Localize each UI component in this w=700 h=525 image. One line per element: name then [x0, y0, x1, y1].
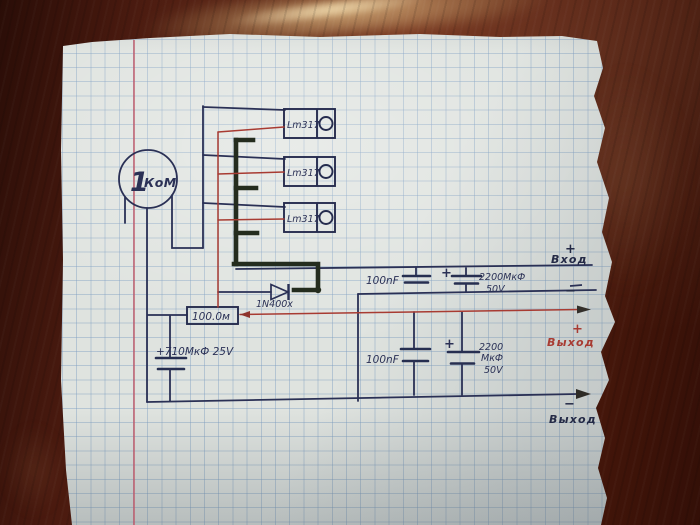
input-minus-rail — [358, 290, 596, 294]
output-large-cap-plus: + — [444, 337, 455, 352]
input-minus-extra-dash — [570, 285, 582, 286]
output-plus-arrowhead — [577, 306, 591, 314]
output-small-cap-label: 100nF — [366, 354, 400, 366]
output-plus-rail — [240, 310, 580, 315]
photo-scene: 1 КоМ — [0, 0, 700, 525]
input-label: Вход — [551, 253, 588, 266]
output-minus-sign: − — [564, 397, 575, 412]
branch-to-regulator-3 — [203, 203, 285, 207]
series-resistor: 100.0м — [187, 307, 238, 324]
red-branch-regulator-1 — [218, 127, 284, 132]
output-large-cap-unit: МкФ — [481, 353, 503, 364]
output-filter: 100nF + 2200 МкФ 50V — [366, 312, 504, 395]
terminal-labels: + Вход − + Выход − Выход — [547, 242, 597, 426]
regulator-2: Lm317 — [284, 157, 335, 186]
regulator-1-label: Lm317 — [287, 120, 320, 131]
red-ink-wires — [218, 127, 591, 318]
output-plus-sign: + — [572, 322, 583, 337]
output-minus-label: Выход — [549, 413, 597, 426]
red-branch-regulator-2 — [218, 172, 284, 174]
regulator-3-hole — [320, 211, 333, 224]
potentiometer-unit: КоМ — [144, 175, 177, 190]
regulator-1: Lm317 — [284, 109, 335, 138]
input-large-cap-plus: + — [441, 266, 452, 281]
red-branch-regulator-3 — [218, 219, 284, 220]
potentiometer: 1 КоМ — [119, 150, 203, 402]
output-large-cap-value: 2200 — [479, 342, 503, 353]
input-large-cap-voltage: 50V — [486, 284, 506, 295]
output-plus-label: Выход — [547, 336, 595, 349]
resistor-arrowhead — [240, 311, 250, 318]
bulk-cap-label: +710МкФ 25V — [156, 346, 234, 358]
hand-drawn-circuit-schematic: 1 КоМ — [0, 0, 700, 525]
resistor-label: 100.0м — [192, 311, 230, 323]
output-minus-arrowhead — [576, 389, 591, 399]
branch-to-regulator-1 — [203, 107, 285, 110]
output-minus-rail — [147, 394, 577, 402]
diode-triangle — [271, 285, 288, 300]
wood-highlight-streak — [205, 0, 455, 32]
regulator-3: Lm317 — [284, 203, 335, 232]
regulator-3-label: Lm317 — [287, 214, 320, 225]
pot-leg-right — [172, 195, 203, 248]
input-filter: 100nF + 2200МкФ 50V — [366, 266, 525, 295]
branch-to-regulator-2 — [203, 155, 285, 159]
input-small-cap-label: 100nF — [366, 275, 400, 287]
regulator-2-label: Lm317 — [287, 168, 320, 179]
green-junction-dot — [315, 287, 321, 293]
wood-sheen — [0, 410, 74, 525]
regulator-2-hole — [320, 165, 333, 178]
diode-label: 1N400x — [256, 299, 293, 310]
input-large-cap-value: 2200МкФ — [479, 272, 525, 283]
regulator-1-hole — [320, 117, 333, 130]
output-large-cap-voltage: 50V — [484, 365, 504, 376]
bulk-capacitor: +710МкФ 25V — [156, 316, 234, 401]
graph-paper-sheet: 1 КоМ — [0, 0, 700, 525]
